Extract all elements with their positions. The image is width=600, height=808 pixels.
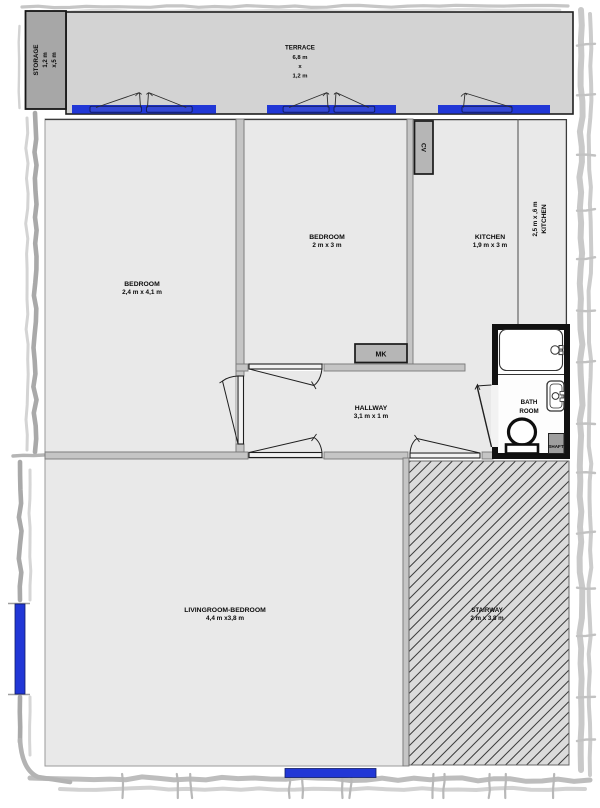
svg-text:2,5 m x ,6 m: 2,5 m x ,6 m (532, 201, 539, 237)
svg-text:3,1 m x 1 m: 3,1 m x 1 m (354, 413, 389, 420)
svg-text:TERRACE: TERRACE (285, 45, 315, 52)
svg-text:CV: CV (420, 143, 427, 153)
svg-text:x,5 m: x,5 m (52, 52, 58, 67)
svg-text:1,2 m: 1,2 m (292, 74, 307, 80)
svg-text:1,2 m: 1,2 m (43, 52, 49, 67)
svg-text:2,4 m x 4,1 m: 2,4 m x 4,1 m (122, 289, 162, 296)
svg-text:LIVINGROOM-BEDROOM: LIVINGROOM-BEDROOM (184, 607, 266, 614)
svg-text:BATH: BATH (521, 399, 538, 406)
svg-text:6,8 m: 6,8 m (292, 55, 307, 61)
svg-text:SHAFT: SHAFT (548, 444, 564, 449)
svg-text:BEDROOM: BEDROOM (309, 234, 345, 241)
svg-text:2 m x 3 m: 2 m x 3 m (312, 242, 341, 249)
svg-text:STORAGE: STORAGE (33, 44, 40, 75)
svg-text:STAIRWAY: STAIRWAY (471, 607, 503, 614)
svg-text:MK: MK (376, 352, 387, 359)
svg-text:KITCHEN: KITCHEN (541, 204, 548, 234)
svg-text:HALLWAY: HALLWAY (355, 405, 388, 412)
svg-text:1,9 m x 3 m: 1,9 m x 3 m (473, 242, 508, 249)
svg-text:4,4 m x3,8 m: 4,4 m x3,8 m (206, 615, 244, 622)
svg-text:BEDROOM: BEDROOM (124, 281, 160, 288)
svg-text:ROOM: ROOM (519, 408, 538, 415)
svg-text:2 m x 3,8 m: 2 m x 3,8 m (470, 615, 504, 622)
svg-text:KITCHEN: KITCHEN (475, 234, 505, 241)
